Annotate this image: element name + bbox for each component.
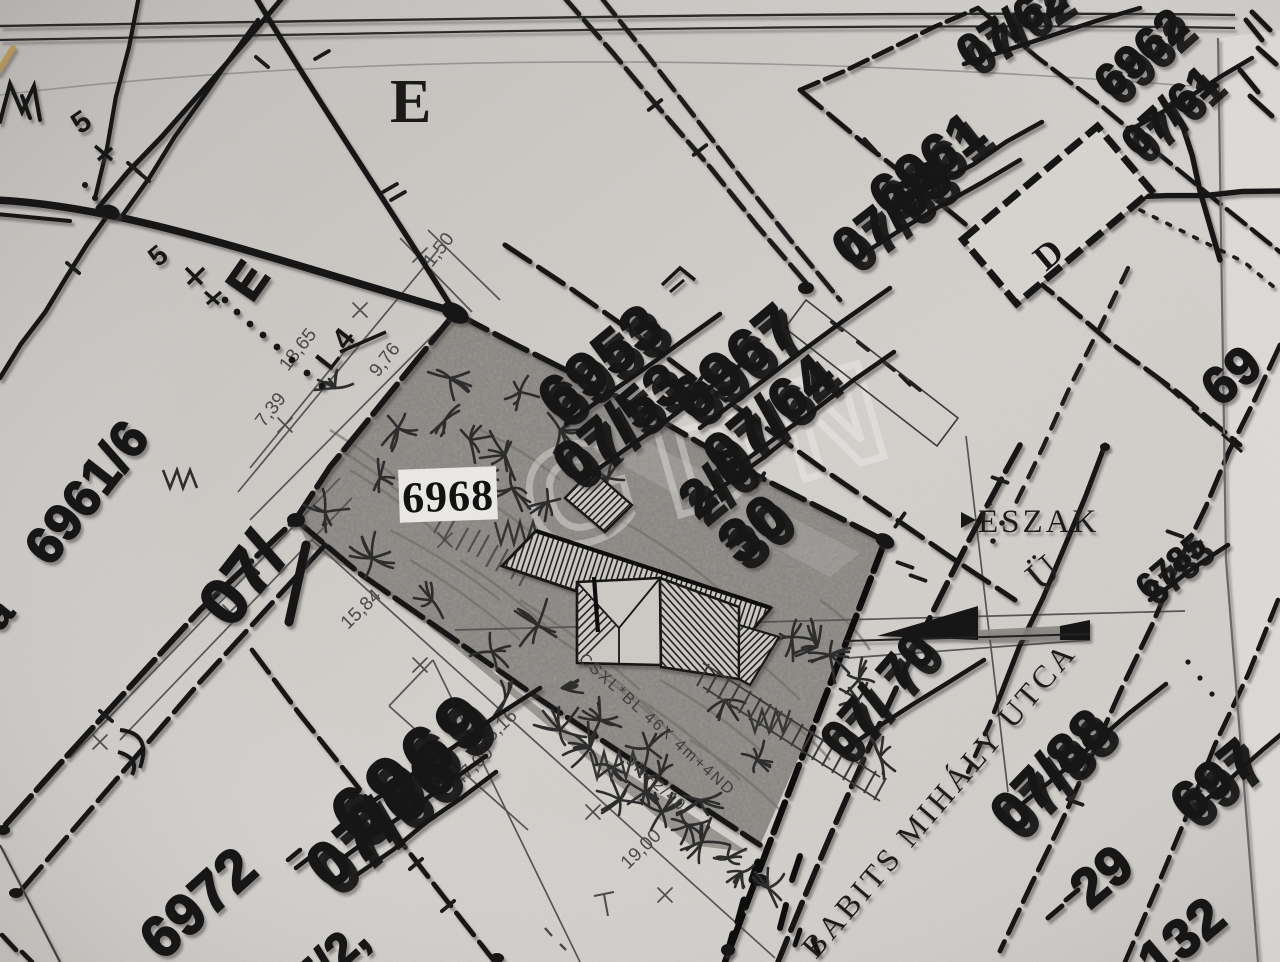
svg-text:ÉSZAK: ÉSZAK [978,503,1099,540]
svg-text:6968: 6968 [401,470,495,522]
svg-text:E: E [390,68,431,136]
